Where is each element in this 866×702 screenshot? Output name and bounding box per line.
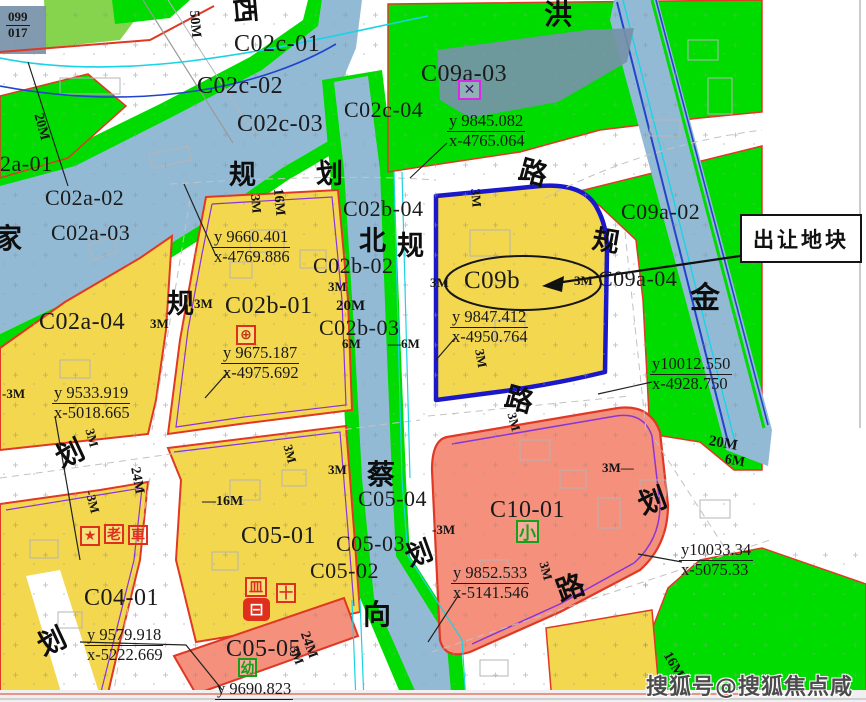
coordinate-label: y 9533.919x-5018.665 xyxy=(52,384,132,422)
dimension-label: 3M xyxy=(473,348,489,369)
road-name-char: 路 xyxy=(553,571,589,607)
parcel-label: C05-04 xyxy=(358,488,427,510)
parcel-label: C05-01 xyxy=(241,524,316,548)
parcel-label: C09b xyxy=(464,268,520,293)
dimension-label: 20M xyxy=(336,299,365,314)
dimension-label: 3M xyxy=(328,463,347,476)
star-landmark-icon: ★ xyxy=(80,526,100,546)
road-name-char: 蔡 xyxy=(367,462,395,490)
primary-school-icon: 小 xyxy=(516,520,539,543)
road-name-char: 划 xyxy=(402,537,437,572)
elder-care-icon: 老 xyxy=(104,524,124,544)
watermark: 搜狐号@搜狐焦点咸宁站 xyxy=(646,669,866,702)
parcel-label: C02c-03 xyxy=(237,112,323,136)
dimension-label: 50M xyxy=(186,10,202,38)
dimension-label: 6M xyxy=(724,453,746,470)
callout-label: 出让地块 xyxy=(753,224,849,254)
parcel-label: C02b-04 xyxy=(343,198,424,220)
dimension-label: 3M xyxy=(574,274,593,287)
dimension-label: 20M xyxy=(707,434,738,454)
road-name-char: 金 xyxy=(690,284,720,314)
dimension-label: —16M xyxy=(202,495,243,509)
dimension-label: 3M xyxy=(328,280,347,293)
road-name-char: 规 xyxy=(167,291,194,318)
dimension-label: 20M xyxy=(30,112,51,142)
coordinate-label: y10012.550x-4928.750 xyxy=(650,355,732,393)
parcel-label: C02b-01 xyxy=(225,294,313,318)
parcel-label: C05-03 xyxy=(336,533,405,555)
road-name-char: 划 xyxy=(52,436,89,473)
parcel-label: C09a-02 xyxy=(621,201,700,223)
dimension-label: 3M xyxy=(281,443,298,465)
road-name-char: 划 xyxy=(635,484,671,520)
road-name-char: 洪 xyxy=(544,2,572,30)
road-name-char: 划 xyxy=(34,624,71,661)
dimension-label: 3M xyxy=(469,188,484,208)
label-layer: C02c-01C02c-02C02c-03C02c-04C09a-03C02b-… xyxy=(0,0,866,702)
station-marker-icon: ✕ xyxy=(458,80,481,100)
parcel-label: C02c-02 xyxy=(197,74,283,98)
dimension-label: 3M xyxy=(150,317,169,330)
road-name-char: 向 xyxy=(363,602,391,630)
coordinate-label: 099017 xyxy=(6,10,30,40)
zoning-map: C02c-01C02c-02C02c-03C02c-04C09a-03C02b-… xyxy=(0,0,866,702)
dimension-label: -3M xyxy=(2,387,25,400)
dimension-label: 3M xyxy=(537,560,554,582)
dimension-label: —6M xyxy=(388,337,420,350)
road-name-char: 路 xyxy=(516,157,550,191)
road-name-char: 规 xyxy=(590,226,621,257)
dimension-label: -3M xyxy=(83,489,102,515)
dimension-label: -3M xyxy=(432,523,455,536)
parcel-label: C02a-02 xyxy=(45,187,124,209)
road-name-char: 划 xyxy=(316,161,343,188)
transport-icon: 車 xyxy=(128,525,148,545)
dimension-label: 3M xyxy=(194,297,213,310)
parcel-label: C02c-04 xyxy=(344,99,423,121)
dimension-label: 3M xyxy=(249,194,264,214)
parcel-label: C02a-03 xyxy=(51,222,130,244)
road-name-char: 家 xyxy=(0,226,22,254)
parcel-label: C09a-04 xyxy=(598,268,677,290)
coordinate-label: y 9579.918x-5222.669 xyxy=(85,626,165,664)
clinic-icon: 十 xyxy=(276,583,296,603)
parcel-label: C02a-04 xyxy=(39,310,125,334)
parcel-label: C05-02 xyxy=(310,560,379,582)
dimension-label: 6M xyxy=(342,337,361,350)
parcel-label: 2a-01 xyxy=(0,153,53,175)
callout-box: 出让地块 xyxy=(740,214,862,263)
coordinate-label: y 9690.823 xyxy=(215,680,293,700)
road-name-char: 西 xyxy=(230,0,258,24)
coordinate-label: y 9845.082x-4765.064 xyxy=(447,112,527,150)
coordinate-label: y 9660.401x-4769.886 xyxy=(212,228,292,266)
coordinate-label: y 9847.412x-4950.764 xyxy=(450,308,530,346)
parcel-label: C02b-02 xyxy=(313,255,394,277)
landmark-icon: ⊕ xyxy=(236,325,256,345)
parcel-label: C04-01 xyxy=(84,586,159,610)
coordinate-label: y10033.34x-5075.33 xyxy=(679,541,753,579)
market-icon: 皿 xyxy=(245,577,267,597)
dimension-label: 3M xyxy=(430,276,449,289)
road-name-char: 规 xyxy=(229,162,256,189)
coordinate-label: y 9852.533x-5141.546 xyxy=(451,564,531,602)
kindergarten-icon: 幼 xyxy=(238,658,257,677)
bus-depot-icon: ⊟ xyxy=(243,598,270,621)
road-name-char: 北 xyxy=(359,228,386,255)
dimension-label: 24M xyxy=(127,466,146,495)
road-name-char: 规 xyxy=(397,233,424,260)
parcel-label: C02c-01 xyxy=(234,32,320,56)
dimension-label: 3M xyxy=(83,427,100,449)
dimension-label: 3M— xyxy=(602,461,634,474)
dimension-label: 16M xyxy=(270,188,286,216)
coordinate-label: y 9675.187x-4975.692 xyxy=(221,344,301,382)
